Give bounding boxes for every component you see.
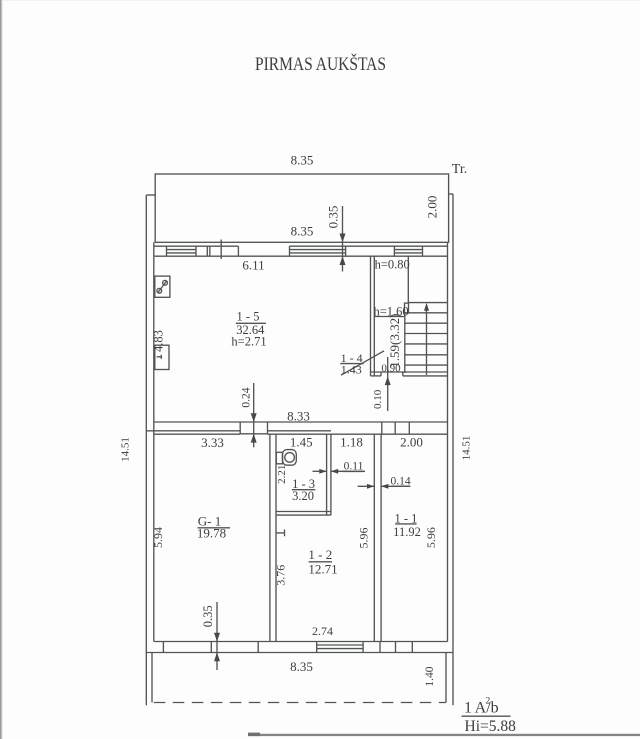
svg-text:h=2.71: h=2.71 xyxy=(231,334,266,348)
svg-text:14.51: 14.51 xyxy=(120,437,132,462)
svg-text:8.35: 8.35 xyxy=(290,659,313,674)
svg-text:3.76: 3.76 xyxy=(273,565,287,586)
svg-text:8.33: 8.33 xyxy=(287,409,310,424)
svg-text:0.35: 0.35 xyxy=(326,206,341,229)
svg-text:PIRMAS AUKŠTAS: PIRMAS AUKŠTAS xyxy=(255,53,386,75)
svg-text:Tr.: Tr. xyxy=(452,162,467,177)
svg-text:0.11: 0.11 xyxy=(344,461,364,473)
svg-text:14.51: 14.51 xyxy=(461,436,473,461)
svg-text:8.35: 8.35 xyxy=(291,153,314,168)
svg-text:h=0.80: h=0.80 xyxy=(375,258,410,272)
svg-text:1 - 2: 1 - 2 xyxy=(308,547,332,562)
svg-text:2.00: 2.00 xyxy=(424,196,439,219)
svg-text:1 - 5: 1 - 5 xyxy=(237,309,260,323)
svg-text:1.40: 1.40 xyxy=(424,666,436,686)
svg-text:12.71: 12.71 xyxy=(308,561,337,576)
svg-text:2.21: 2.21 xyxy=(276,465,288,484)
svg-text:5.94: 5.94 xyxy=(151,527,165,548)
svg-text:1 A/b: 1 A/b xyxy=(464,700,499,717)
svg-text:5.96: 5.96 xyxy=(357,528,371,549)
svg-text:6.11: 6.11 xyxy=(242,258,264,273)
svg-text:2.74: 2.74 xyxy=(312,624,333,638)
svg-text:0.24: 0.24 xyxy=(241,387,253,407)
svg-text:3.20: 3.20 xyxy=(292,489,314,503)
svg-text:19.78: 19.78 xyxy=(197,526,226,541)
svg-text:1.18: 1.18 xyxy=(340,434,363,449)
svg-text:1.59(3.32): 1.59(3.32) xyxy=(387,314,402,368)
svg-text:1.45: 1.45 xyxy=(290,434,313,449)
svg-text:Hi=5.88: Hi=5.88 xyxy=(465,718,517,735)
svg-text:2.00: 2.00 xyxy=(400,434,423,449)
svg-text:0.35: 0.35 xyxy=(201,605,215,627)
svg-text:0.10: 0.10 xyxy=(372,389,384,409)
svg-text:2: 2 xyxy=(486,697,491,707)
svg-text:1.43: 1.43 xyxy=(341,363,362,377)
svg-text:11.92: 11.92 xyxy=(393,525,421,539)
svg-text:0.90: 0.90 xyxy=(381,362,401,374)
svg-text:8.35: 8.35 xyxy=(291,224,314,239)
svg-text:3.33: 3.33 xyxy=(201,435,224,450)
svg-text:4.83: 4.83 xyxy=(151,330,165,352)
svg-text:5.96: 5.96 xyxy=(424,527,438,548)
